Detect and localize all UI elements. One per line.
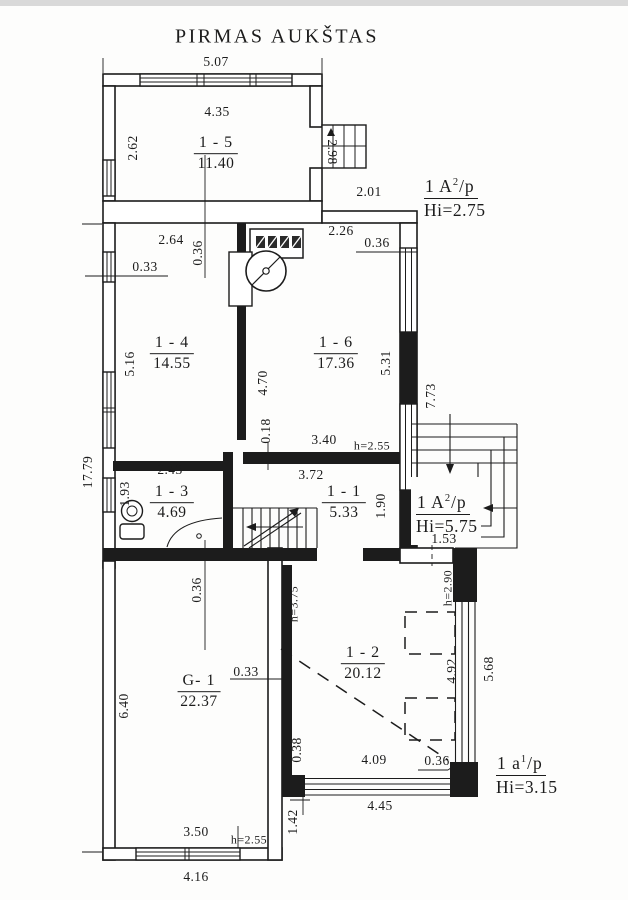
dim-2-64: 2.64 bbox=[158, 232, 183, 248]
dim-3-50: 3.50 bbox=[183, 824, 208, 840]
boiler-icon bbox=[246, 251, 286, 291]
dim-4-35: 4.35 bbox=[204, 104, 229, 120]
dim-1-90: 1.90 bbox=[373, 493, 389, 518]
room-label-1-2: 1 - 2 20.12 bbox=[341, 644, 385, 682]
dim-5-16: 5.16 bbox=[122, 351, 138, 376]
dim-2-62: 2.62 bbox=[125, 135, 141, 160]
room-number: 1 - 1 bbox=[322, 483, 366, 503]
dim-0-33-a: 0.33 bbox=[132, 259, 157, 275]
dim-6-40: 6.40 bbox=[116, 693, 132, 718]
room-label-1-6: 1 - 6 17.36 bbox=[314, 334, 358, 372]
annotation-suffix: /p bbox=[459, 176, 475, 196]
dim-3-40: 3.40 bbox=[311, 432, 336, 448]
room-label-1-5: 1 - 5 11.40 bbox=[194, 134, 238, 172]
dim-1-53: 1.53 bbox=[431, 531, 456, 547]
dim-h-3-75: h=3.75 bbox=[287, 586, 302, 622]
dim-h-2-55-b: h=2.55 bbox=[231, 833, 267, 848]
room-area: 17.36 bbox=[314, 354, 358, 372]
door-swing bbox=[167, 518, 222, 547]
dim-0-36-a: 0.36 bbox=[190, 240, 206, 265]
room-area: 11.40 bbox=[194, 154, 238, 172]
dim-2-43: 2.43 bbox=[157, 462, 182, 478]
dim-0-36-b: 0.36 bbox=[364, 235, 389, 251]
room-label-1-4: 1 - 4 14.55 bbox=[150, 334, 194, 372]
annotation-height: Hi=2.75 bbox=[424, 199, 486, 220]
page-title: PIRMAS AUKŠTAS bbox=[175, 26, 379, 49]
dim-2-26: 2.26 bbox=[328, 223, 353, 239]
annotation-height: Hi=3.15 bbox=[496, 776, 558, 797]
dim-4-92: 4.92 bbox=[444, 658, 460, 683]
room-number: 1 - 3 bbox=[150, 483, 194, 503]
dim-4-45: 4.45 bbox=[367, 798, 392, 814]
room-label-1-1: 1 - 1 5.33 bbox=[322, 483, 366, 521]
dim-7-73: 7.73 bbox=[423, 383, 439, 408]
dim-1-42: 1.42 bbox=[285, 809, 301, 834]
annotation-a2p-hi575: 1 A2/p Hi=5.75 bbox=[416, 492, 478, 536]
dim-h-2-55-a: h=2.55 bbox=[354, 439, 390, 454]
room-number: 1 - 5 bbox=[194, 134, 238, 154]
room-number: 1 - 4 bbox=[150, 334, 194, 354]
dim-4-70: 4.70 bbox=[255, 370, 271, 395]
dim-0-38: 0.38 bbox=[289, 737, 305, 762]
room-area: 4.69 bbox=[150, 503, 194, 521]
annotation-suffix: /p bbox=[527, 753, 543, 773]
annotation-prefix: 1 A bbox=[425, 176, 453, 196]
room-number: 1 - 2 bbox=[341, 644, 385, 664]
annotation-suffix: /p bbox=[451, 492, 467, 512]
dim-0-36-c: 0.36 bbox=[189, 577, 205, 602]
annotation-prefix: 1 A bbox=[417, 492, 445, 512]
dim-2-01: 2.01 bbox=[356, 184, 381, 200]
dim-1-93: 1.93 bbox=[117, 481, 133, 506]
dim-5-31: 5.31 bbox=[378, 350, 394, 375]
annotation-a1p-hi315: 1 a1/p Hi=3.15 bbox=[496, 753, 558, 797]
room-label-1-3: 1 - 3 4.69 bbox=[150, 483, 194, 521]
dim-4-16: 4.16 bbox=[183, 869, 208, 885]
room-label-g-1: G- 1 22.37 bbox=[178, 672, 221, 710]
dim-3-72: 3.72 bbox=[298, 467, 323, 483]
floor-plan-page: PIRMAS AUKŠTAS 1 - 5 11.40 1 - 4 14.55 1… bbox=[0, 0, 628, 900]
room-area: 14.55 bbox=[150, 354, 194, 372]
room-number: 1 - 6 bbox=[314, 334, 358, 354]
dim-5-68: 5.68 bbox=[481, 656, 497, 681]
dim-4-09: 4.09 bbox=[361, 752, 386, 768]
dim-0-36-d: 0.36 bbox=[424, 753, 449, 769]
dim-0-33-b: 0.33 bbox=[233, 664, 258, 680]
dim-2-98: 2.98 bbox=[324, 139, 340, 164]
room-number: G- 1 bbox=[178, 672, 221, 692]
staircase bbox=[233, 508, 317, 548]
dim-17-79: 17.79 bbox=[80, 456, 96, 488]
dim-5-07: 5.07 bbox=[203, 54, 228, 70]
dim-0-18: 0.18 bbox=[258, 418, 274, 443]
room-area: 22.37 bbox=[178, 692, 221, 710]
annotation-a2p-hi275: 1 A2/p Hi=2.75 bbox=[424, 176, 486, 220]
annotation-prefix: 1 a bbox=[497, 753, 521, 773]
room-area: 5.33 bbox=[322, 503, 366, 521]
dim-h-2-90: h=2.90 bbox=[441, 570, 456, 606]
room-area: 20.12 bbox=[341, 664, 385, 682]
